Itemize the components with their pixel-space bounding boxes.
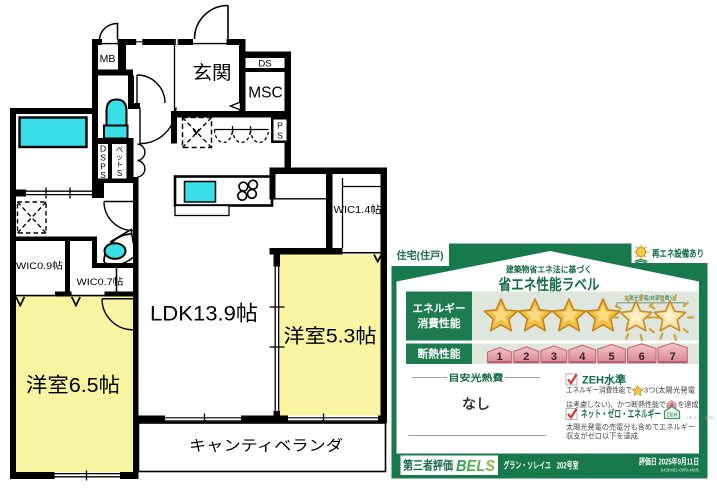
svg-text:ZEH水準: ZEH水準 [582, 373, 626, 387]
svg-text:MB: MB [100, 53, 116, 65]
svg-text:6: 6 [639, 351, 645, 363]
svg-text:再エネ設備あり: 再エネ設備あり [652, 248, 704, 260]
svg-text:BELS: BELS [456, 458, 495, 475]
svg-text:WIC0.9帖: WIC0.9帖 [16, 260, 63, 272]
svg-text:WIC0.7帖: WIC0.7帖 [77, 276, 124, 288]
svg-text:エネルギー消費性能で: エネルギー消費性能で [566, 386, 632, 395]
svg-text:第三者評価: 第三者評価 [403, 458, 453, 473]
svg-text:評価日 2025年9月11日: 評価日 2025年9月11日 [639, 457, 699, 467]
svg-text:消費性能: 消費性能 [418, 317, 461, 330]
svg-text:太陽光発電(自家消費分): 太陽光発電(自家消費分) [624, 294, 676, 302]
svg-text:住宅(住戸): 住宅(住戸) [397, 249, 444, 262]
svg-text:キャンティベランダ: キャンティベランダ [189, 438, 343, 455]
svg-text:2: 2 [523, 351, 529, 363]
svg-text:DS: DS [258, 59, 271, 70]
svg-text:ネット・ゼロ・エネルギー: ネット・ゼロ・エネルギー [581, 408, 661, 421]
svg-text:b42b481-69f9-46d5: b42b481-69f9-46d5 [661, 468, 700, 473]
svg-text:7: 7 [670, 351, 676, 363]
svg-text:3つ(太陽光発電: 3つ(太陽光発電 [644, 386, 696, 395]
svg-text:1: 1 [497, 351, 503, 363]
svg-text:MSC: MSC [248, 85, 282, 102]
svg-text:なし: なし [462, 396, 490, 412]
svg-text:ト: ト [116, 160, 123, 169]
svg-text:建築物省エネ法に基づく: 建築物省エネ法に基づく [505, 264, 592, 275]
svg-text:P: P [277, 121, 283, 131]
svg-text:洋室6.5帖: 洋室6.5帖 [26, 374, 120, 397]
svg-text:グラン・ソレイユ 202号室: グラン・ソレイユ 202号室 [504, 460, 579, 471]
svg-text:洋室5.3帖: 洋室5.3帖 [284, 326, 377, 348]
svg-text:太陽光発電の売電分も含めてエネルギー: 太陽光発電の売電分も含めてエネルギー [566, 423, 695, 432]
svg-text:S: S [277, 131, 283, 141]
svg-text:WIC1.4帖: WIC1.4帖 [334, 203, 383, 216]
svg-text:S: S [117, 169, 122, 178]
svg-text:収支がゼロ以下を達成: 収支がゼロ以下を達成 [566, 432, 639, 441]
svg-text:省エネ性能ラベル: 省エネ性能ラベル [498, 276, 600, 294]
svg-text:目安光熱費: 目安光熱費 [449, 372, 504, 383]
svg-text:5: 5 [609, 351, 615, 363]
svg-text:を達成: を達成 [678, 400, 700, 409]
svg-text:断熱性能: 断熱性能 [418, 348, 461, 361]
svg-text:S: S [100, 170, 106, 180]
svg-text:(ネット・ゼロ): (ネット・ゼロ) [687, 414, 714, 420]
svg-text:3: 3 [551, 351, 557, 363]
svg-text:エネルギー: エネルギー [413, 302, 466, 315]
svg-text:玄関: 玄関 [193, 62, 232, 84]
svg-text:は考慮しない)、かつ断熱性能で: は考慮しない)、かつ断熱性能で [566, 400, 666, 409]
svg-text:ZEH: ZEH [666, 413, 677, 419]
svg-text:LDK13.9帖: LDK13.9帖 [150, 303, 258, 326]
svg-text:4: 4 [579, 351, 586, 363]
